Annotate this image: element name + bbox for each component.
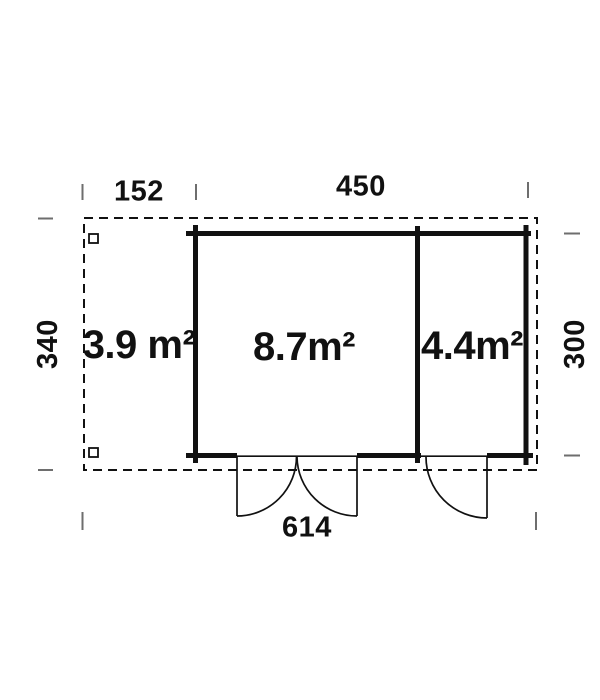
single-door <box>421 456 487 518</box>
room-area-main: 8.7m² <box>253 325 355 369</box>
room-area-labels: 3.9 m² 8.7m² 4.4m² <box>83 323 523 369</box>
double-door-left-swing-arc <box>237 457 297 517</box>
post-bottom-left <box>89 448 98 457</box>
post-top-left <box>89 234 98 243</box>
room-area-canopy: 3.9 m² <box>83 323 196 367</box>
dim-total-width-label: 614 <box>282 512 332 544</box>
dim-right-depth-label: 300 <box>559 319 591 369</box>
floor-plan-page: 152 450 340 300 614 3.9 m² 8.7m² 4.4m² <box>0 0 600 700</box>
floor-plan-canvas: 152 450 340 300 614 3.9 m² 8.7m² 4.4m² <box>0 0 600 700</box>
dim-cabin-width-label: 450 <box>336 171 386 203</box>
double-door <box>237 456 357 516</box>
single-door-swing-arc <box>426 457 487 518</box>
double-door-right-swing-arc <box>297 457 357 516</box>
dim-canopy-width-label: 152 <box>114 176 164 208</box>
dim-left-depth-label: 340 <box>32 319 64 369</box>
room-area-side: 4.4m² <box>421 324 523 368</box>
